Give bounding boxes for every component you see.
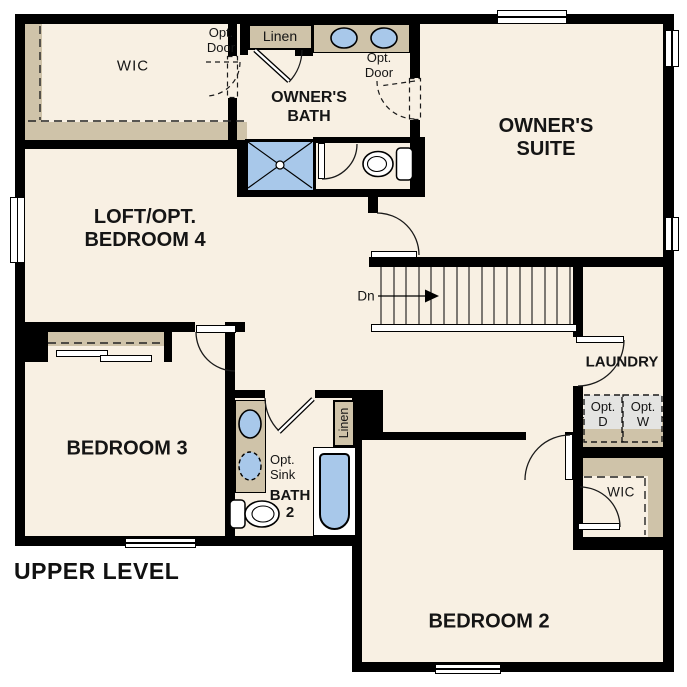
annotation-opt-washer: Opt. W bbox=[631, 399, 656, 429]
wall-wic-right-b bbox=[228, 97, 237, 140]
bath2-vanity bbox=[235, 400, 266, 493]
room-label-laundry: LAUNDRY bbox=[586, 354, 659, 371]
window-bedroom2 bbox=[435, 664, 501, 674]
label-text: Linen bbox=[263, 28, 297, 44]
room-label-line: BEDROOM 4 bbox=[84, 229, 205, 252]
wall-linen-stub bbox=[240, 24, 248, 55]
annotation-opt-door-wic: Opt. Door bbox=[207, 25, 235, 55]
wic2-shelf-top bbox=[583, 458, 674, 476]
door-owners-toilet bbox=[318, 143, 325, 179]
room-label-bedroom2: BEDROOM 2 bbox=[428, 611, 549, 634]
opt-door-wic-opening bbox=[227, 56, 238, 98]
room-label-wic-bedroom2: WIC bbox=[607, 485, 635, 500]
wall-bath-suite-a bbox=[410, 24, 420, 79]
label-text: Linen bbox=[337, 408, 351, 439]
level-title-text: UPPER LEVEL bbox=[14, 558, 179, 584]
closet-bypass-door-2 bbox=[100, 355, 152, 362]
wall-right bbox=[663, 14, 674, 672]
wall-wic-bottom bbox=[15, 140, 247, 149]
annotation-line: Opt. bbox=[270, 452, 295, 467]
annotation-line: Door bbox=[365, 65, 393, 80]
door-bedroom2 bbox=[565, 434, 573, 480]
room-label-line: LOFT/OPT. bbox=[84, 206, 205, 229]
window-right-suite-2 bbox=[665, 217, 679, 251]
wall-hall-block bbox=[352, 390, 383, 440]
label-linen-bath2: Linen bbox=[337, 408, 351, 439]
bathtub bbox=[319, 453, 350, 530]
annotation-line: Opt. bbox=[207, 25, 235, 40]
wall-bath2-top-b bbox=[315, 390, 355, 398]
room-label-text: LAUNDRY bbox=[586, 354, 659, 371]
window-mullion bbox=[126, 542, 195, 544]
wall-toilet-right bbox=[415, 137, 425, 197]
door-bedroom3 bbox=[196, 325, 236, 333]
wall-left bbox=[15, 14, 25, 546]
wall-bedroom2-bottom bbox=[352, 662, 674, 672]
room-label-line: OWNER'S bbox=[499, 115, 594, 138]
shower bbox=[245, 139, 316, 193]
annotation-line: Opt. bbox=[365, 50, 393, 65]
label-linen-owner: Linen bbox=[263, 28, 297, 44]
wall-closet-side-left bbox=[42, 332, 48, 362]
owners-vanity-counter bbox=[313, 24, 410, 53]
room-label-text: BEDROOM 3 bbox=[66, 438, 187, 460]
stair-direction-label: Dn bbox=[357, 289, 374, 304]
room-label-text: WIC bbox=[117, 58, 149, 75]
window-bedroom3 bbox=[125, 538, 196, 548]
room-label-owners-suite: OWNER'S SUITE bbox=[499, 115, 594, 161]
window-top-suite bbox=[497, 10, 567, 24]
annotation-line: D bbox=[591, 414, 616, 429]
room-label-wic-owner: WIC bbox=[117, 58, 149, 75]
window-mullion bbox=[17, 198, 19, 262]
annotation-line: W bbox=[631, 414, 656, 429]
room-label-bedroom3: BEDROOM 3 bbox=[66, 438, 187, 461]
wall-toilet-top bbox=[313, 137, 415, 143]
wall-suite-south bbox=[369, 257, 674, 267]
room-label-text: WIC bbox=[607, 485, 635, 500]
annotation-opt-door-suite: Opt. Door bbox=[365, 50, 393, 80]
room-label-line: BATH bbox=[270, 487, 311, 504]
room-label-text: BEDROOM 2 bbox=[428, 611, 549, 633]
window-mullion bbox=[671, 218, 673, 250]
room-label-owners-bath: OWNER'S BATH bbox=[271, 88, 347, 126]
room-label-line: 2 bbox=[270, 504, 311, 521]
annotation-opt-sink: Opt. Sink bbox=[270, 452, 295, 482]
door-wic-bedroom2 bbox=[578, 523, 620, 530]
wall-suite-door-stub bbox=[368, 197, 378, 213]
room-label-line: BATH bbox=[271, 107, 347, 126]
window-right-suite-1 bbox=[665, 30, 679, 67]
wall-bedroom3-top-stub bbox=[235, 322, 245, 332]
room-label-line: SUITE bbox=[499, 138, 594, 161]
level-title: UPPER LEVEL bbox=[14, 558, 179, 585]
annotation-line: Opt. bbox=[591, 399, 616, 414]
wall-wic2-bottom bbox=[573, 537, 674, 550]
window-mullion bbox=[671, 31, 673, 66]
opt-door-suite-opening bbox=[409, 78, 421, 120]
label-text: Dn bbox=[357, 289, 374, 304]
door-owners-suite bbox=[371, 251, 417, 258]
annotation-opt-dryer: Opt. D bbox=[591, 399, 616, 429]
wall-closet-side-right bbox=[164, 332, 172, 362]
window-mullion bbox=[498, 16, 566, 18]
wall-bedroom3-bath2 bbox=[225, 322, 235, 536]
bedroom3-closet-shelf bbox=[47, 332, 164, 346]
wic-shelf-bottom bbox=[25, 122, 247, 140]
window-left-loft bbox=[10, 197, 25, 263]
wall-bedroom2-right bbox=[573, 432, 583, 537]
annotation-line: Opt. bbox=[631, 399, 656, 414]
floor-plan: WIC Opt. Door Linen OWNER'S BATH Opt. Do… bbox=[0, 0, 687, 687]
room-label-loft: LOFT/OPT. BEDROOM 4 bbox=[84, 206, 205, 252]
room-label-bath2: BATH 2 bbox=[270, 487, 311, 521]
room-label-line: OWNER'S bbox=[271, 88, 347, 107]
annotation-line: Door bbox=[207, 40, 235, 55]
door-laundry bbox=[576, 336, 624, 343]
stair-rail bbox=[371, 324, 577, 332]
window-mullion bbox=[436, 668, 500, 670]
annotation-line: Sink bbox=[270, 467, 295, 482]
wall-top bbox=[15, 14, 674, 24]
wall-laundry-bottom bbox=[573, 447, 674, 458]
